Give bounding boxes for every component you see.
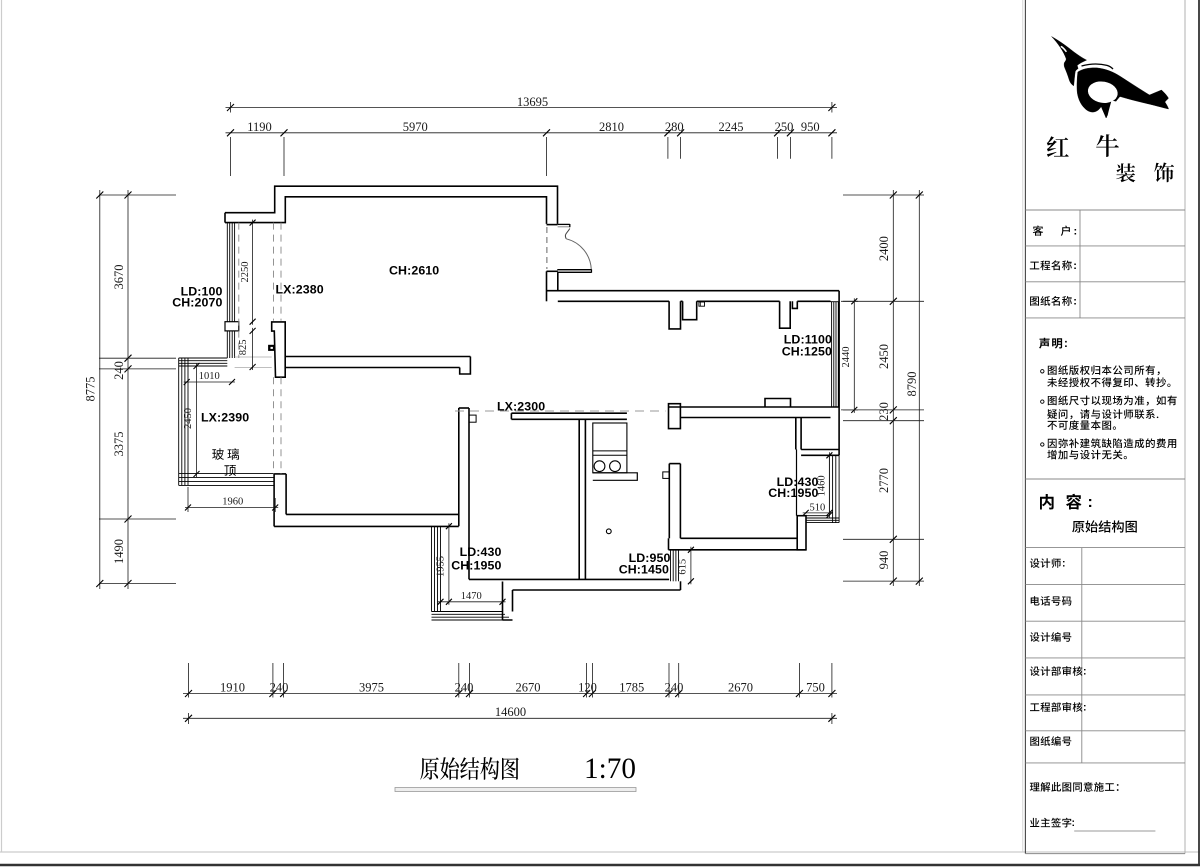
svg-text:240: 240 — [112, 361, 126, 380]
svg-text:2450: 2450 — [877, 344, 891, 369]
svg-text:1010: 1010 — [199, 371, 220, 382]
svg-text:CH:2070: CH:2070 — [172, 296, 222, 310]
svg-text:510: 510 — [810, 502, 826, 513]
svg-text:LD:430: LD:430 — [460, 545, 502, 559]
svg-text::: : — [1083, 666, 1087, 678]
svg-text:120: 120 — [578, 681, 597, 695]
svg-text:2810: 2810 — [599, 120, 624, 134]
svg-text:CH:1950: CH:1950 — [451, 559, 501, 573]
svg-text:LX:2300: LX:2300 — [497, 400, 545, 414]
svg-text:950: 950 — [801, 120, 820, 134]
svg-text::: : — [1074, 225, 1078, 237]
svg-text:5970: 5970 — [403, 120, 428, 134]
svg-text:1955: 1955 — [435, 556, 446, 577]
svg-text:1910: 1910 — [220, 681, 245, 695]
svg-text::: : — [1073, 260, 1077, 272]
svg-text:LX:2380: LX:2380 — [276, 283, 324, 297]
svg-text::: : — [1064, 338, 1068, 350]
svg-text:1785: 1785 — [619, 681, 644, 695]
svg-text:240: 240 — [665, 681, 684, 695]
svg-text:750: 750 — [806, 681, 825, 695]
svg-text:2770: 2770 — [877, 468, 891, 493]
svg-text:3670: 3670 — [112, 265, 126, 290]
svg-text:280: 280 — [665, 120, 684, 134]
svg-text:2440: 2440 — [841, 347, 852, 368]
svg-text:2400: 2400 — [877, 236, 891, 261]
svg-text:940: 940 — [877, 551, 891, 570]
svg-text:LX:2390: LX:2390 — [201, 411, 249, 425]
svg-text:2250: 2250 — [240, 262, 251, 283]
svg-text:8775: 8775 — [84, 377, 98, 402]
svg-text:3975: 3975 — [359, 681, 384, 695]
svg-text::: : — [1088, 494, 1093, 511]
svg-text:1960: 1960 — [222, 497, 243, 508]
svg-text::: : — [1062, 558, 1066, 570]
svg-text:CH:1950: CH:1950 — [768, 486, 818, 500]
svg-text:1470: 1470 — [461, 591, 482, 602]
svg-text:3375: 3375 — [112, 432, 126, 457]
svg-text:1490: 1490 — [112, 539, 126, 564]
svg-text:240: 240 — [455, 681, 474, 695]
svg-text:13695: 13695 — [517, 95, 548, 109]
svg-text:250: 250 — [775, 120, 794, 134]
svg-text:2670: 2670 — [516, 681, 541, 695]
svg-text:14600: 14600 — [495, 705, 526, 719]
svg-text:1:70: 1:70 — [584, 752, 636, 785]
svg-text:2245: 2245 — [719, 120, 744, 134]
svg-text:240: 240 — [270, 681, 289, 695]
svg-text:615: 615 — [677, 559, 688, 575]
svg-text:2670: 2670 — [728, 681, 753, 695]
svg-text:2450: 2450 — [183, 408, 194, 429]
svg-text:230: 230 — [877, 402, 891, 421]
svg-text::: : — [1083, 702, 1087, 714]
svg-text:CH:1450: CH:1450 — [619, 563, 669, 577]
svg-text:CH:2610: CH:2610 — [389, 264, 439, 278]
svg-text:8790: 8790 — [905, 372, 919, 397]
svg-text:1190: 1190 — [247, 120, 272, 134]
svg-text::: : — [1073, 295, 1077, 307]
svg-text:CH:1250: CH:1250 — [782, 345, 832, 359]
svg-text:825: 825 — [238, 339, 249, 355]
svg-text::: : — [1072, 817, 1076, 829]
